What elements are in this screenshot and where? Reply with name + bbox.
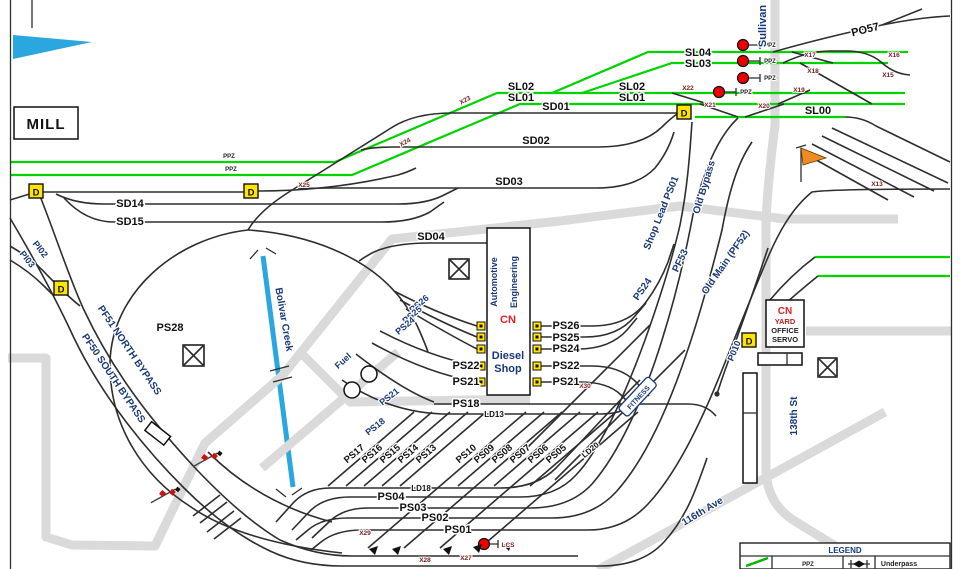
legend-underpass: Underpass xyxy=(881,561,917,568)
yard-office-servo: SERVO xyxy=(772,335,798,344)
switch-label: X28 xyxy=(419,557,431,564)
track-label-sd14: SD14 xyxy=(116,198,144,210)
track-label-sl01: SL01 xyxy=(619,92,645,104)
track-label-ps22: PS22 xyxy=(553,360,580,372)
track-label-ps24-lead: PS24 xyxy=(631,276,654,303)
detector-d: D xyxy=(681,109,688,120)
roads xyxy=(8,0,952,569)
legend-title: LEGEND xyxy=(828,546,862,555)
track-label-old-main: Old Main (PF52) xyxy=(700,228,752,296)
track-label-po57: PO57 xyxy=(850,21,880,39)
track-label-ps26: PS26 xyxy=(553,320,580,332)
yard-office-office: OFFICE xyxy=(771,326,799,335)
map-border xyxy=(11,0,952,569)
track-label-pi02: PI02 xyxy=(31,239,50,260)
lcs-label: LCS xyxy=(502,542,516,549)
switch-label: X19 xyxy=(793,87,805,94)
shop-label-shop: Shop xyxy=(494,363,522,375)
track-label-sl03: SL03 xyxy=(685,58,711,70)
track-label-ps28: PS28 xyxy=(157,322,184,334)
switch-label: X18 xyxy=(807,68,819,75)
fuel-label: Fuel xyxy=(333,351,353,371)
track-label-ps21: PS21 xyxy=(453,376,480,388)
shop-label-engineering: Engineering xyxy=(509,256,519,308)
track-label-sd02: SD02 xyxy=(522,135,550,147)
track-label-ps18-lead: PS18 xyxy=(363,416,387,437)
yard-diagram-canvas: MILL PPZ PPZ PPZ PPZ PPZ PPZ PO57 Sulliv… xyxy=(0,0,960,569)
switch-label: X20 xyxy=(758,103,770,110)
detector-d: D xyxy=(33,188,40,199)
switch-label: X29 xyxy=(359,530,371,537)
track-label-ps22: PS22 xyxy=(453,360,480,372)
detector-d: D xyxy=(248,188,255,199)
north-wedge xyxy=(13,35,92,59)
switch-label: X30 xyxy=(579,383,591,390)
track-label-ps24: PS24 xyxy=(553,343,581,355)
track-label-ld18: LD18 xyxy=(411,484,431,493)
ppz-signal-label: PPZ xyxy=(764,76,776,82)
yard-office-yard: YARD xyxy=(775,317,796,326)
switch-label: X15 xyxy=(882,72,894,79)
track-label-sd01: SD01 xyxy=(542,101,570,113)
cn-logo: CN xyxy=(500,314,516,326)
ppz-label: PPZ xyxy=(223,154,235,160)
track-label-ld13: LD13 xyxy=(484,410,504,419)
switch-label: X21 xyxy=(704,102,716,109)
track-label-sd15: SD15 xyxy=(116,216,144,228)
track-label-sl00: SL00 xyxy=(805,105,831,117)
track-schematic: MILL PPZ PPZ PPZ PPZ PPZ PPZ PO57 Sulliv… xyxy=(0,0,960,569)
track-label-pf50: PF50 SOUTH BYPASS xyxy=(79,332,147,425)
shop-label-automotive: Automotive xyxy=(489,257,499,307)
switch-label: X25 xyxy=(298,182,310,189)
black-tracks xyxy=(10,0,952,569)
street-label-138th: 138th St xyxy=(789,396,800,436)
street-label-sullivan: Sullivan xyxy=(757,5,769,47)
track-label-ps01: PS01 xyxy=(445,524,472,536)
detector-d: D xyxy=(58,285,65,296)
track-label-ps18: PS18 xyxy=(453,398,480,410)
track-label-p010: P010 xyxy=(726,339,743,362)
track-label-sl01: SL01 xyxy=(508,92,534,104)
mill-label: MILL xyxy=(27,116,66,133)
ppz-signal-label: PPZ xyxy=(740,90,752,96)
switch-label: X17 xyxy=(804,52,816,59)
lcs-signal xyxy=(479,539,499,550)
ppz-signal-label: PPZ xyxy=(764,59,776,65)
building xyxy=(758,353,802,365)
ppz-signals xyxy=(714,40,761,98)
fuel-tank xyxy=(361,366,377,382)
track-label-sd04: SD04 xyxy=(417,231,445,243)
street-label-116th: 116th Ave xyxy=(680,495,725,528)
ppz-label: PPZ xyxy=(225,167,237,173)
switch-label: X16 xyxy=(888,52,900,59)
switch-label: X13 xyxy=(871,181,883,188)
building xyxy=(743,373,757,483)
yard-office-cn: CN xyxy=(778,306,792,317)
track-label-ps21: PS21 xyxy=(553,376,580,388)
shop-label-diesel: Diesel xyxy=(492,350,524,362)
track-label-ps02: PS02 xyxy=(422,512,449,524)
legend-ppz: PPZ xyxy=(802,562,814,568)
track-label-sd03: SD03 xyxy=(495,176,523,188)
fuel-tank xyxy=(344,382,360,398)
switch-label: X22 xyxy=(682,85,694,92)
detector-d: D xyxy=(746,337,753,348)
switch-label: X27 xyxy=(460,555,472,562)
